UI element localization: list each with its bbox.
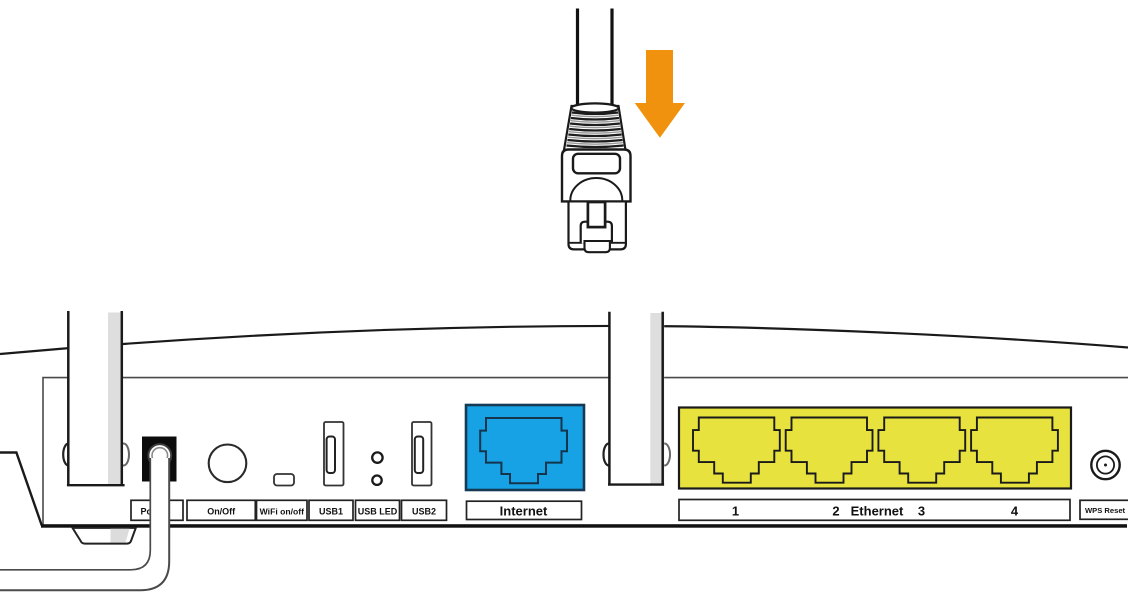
svg-text:2: 2: [832, 503, 839, 518]
svg-text:WPS Reset: WPS Reset: [1085, 506, 1126, 515]
svg-text:4: 4: [1011, 503, 1019, 518]
svg-text:USB LED: USB LED: [358, 506, 398, 516]
svg-text:Ethernet: Ethernet: [851, 503, 904, 518]
svg-text:3: 3: [918, 503, 925, 518]
svg-text:Internet: Internet: [500, 503, 548, 518]
svg-text:On/Off: On/Off: [207, 506, 236, 516]
svg-text:WiFi on/off: WiFi on/off: [260, 506, 304, 516]
svg-text:USB1: USB1: [319, 506, 343, 516]
svg-text:1: 1: [732, 503, 739, 518]
svg-text:USB2: USB2: [412, 506, 436, 516]
